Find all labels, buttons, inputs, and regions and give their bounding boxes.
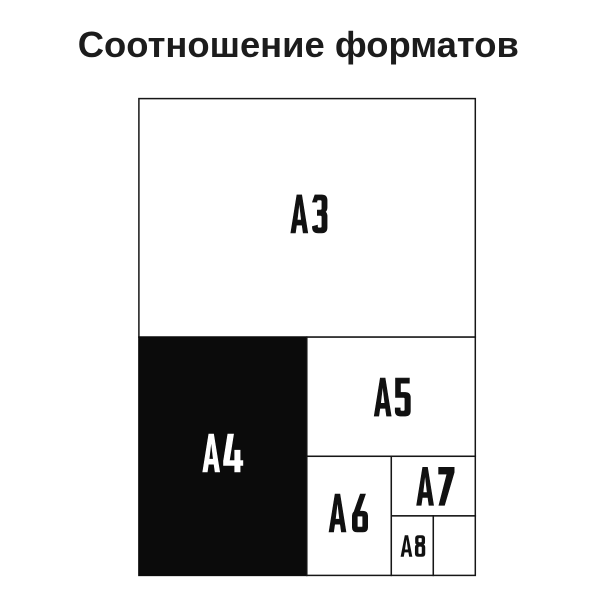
svg-text:Соотношение форматов: Соотношение форматов: [78, 24, 519, 65]
